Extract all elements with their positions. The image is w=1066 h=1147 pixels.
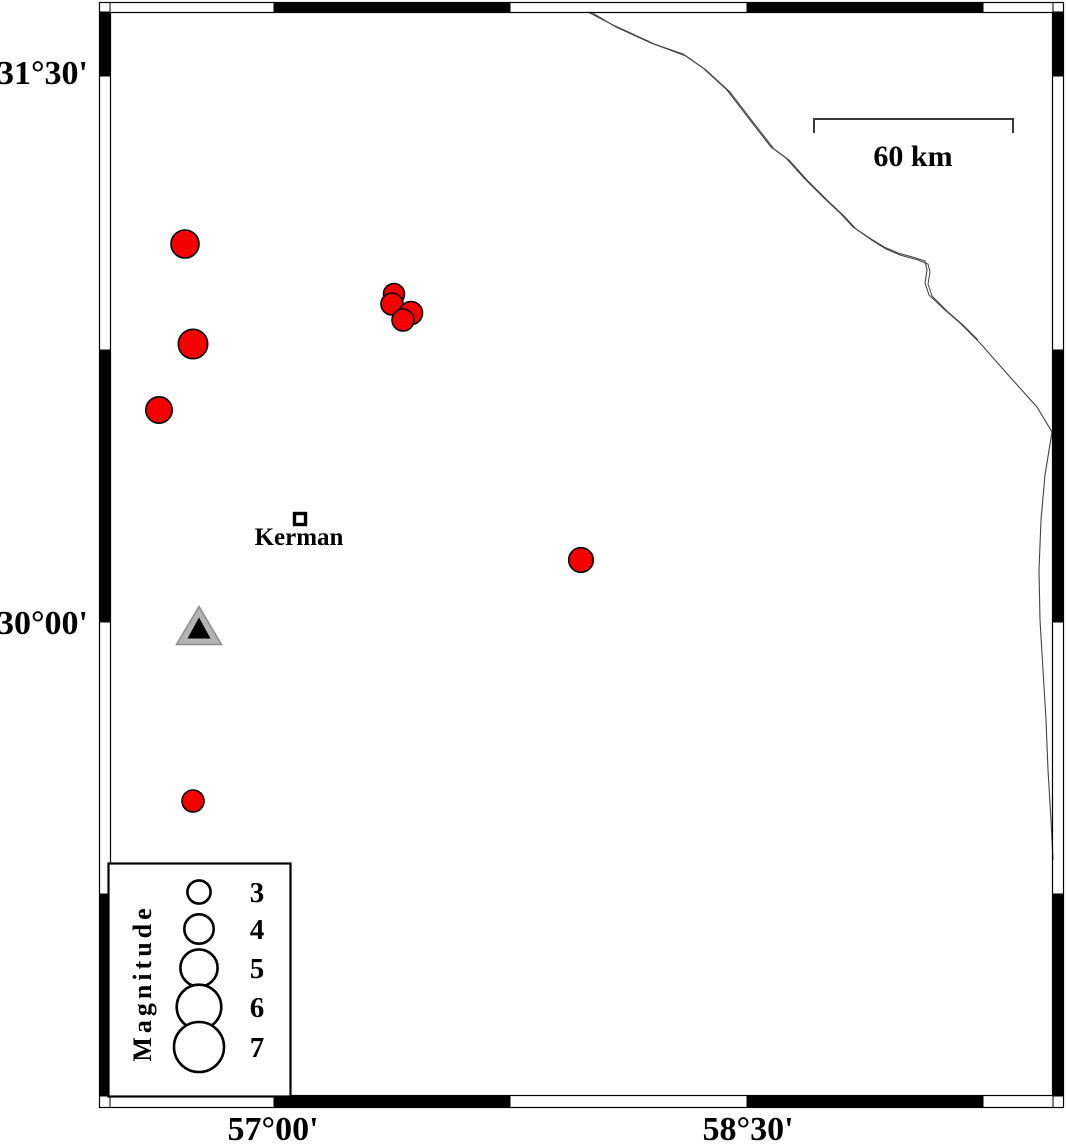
frame-band-bottom	[747, 1096, 983, 1108]
frame-band-right	[1053, 894, 1064, 1096]
city-square-icon	[295, 514, 306, 525]
frame-band-bottom	[274, 1096, 510, 1108]
earthquake-marker	[392, 309, 414, 331]
frame-band-left	[99, 12, 110, 76]
legend-magnitude-circle	[187, 880, 210, 903]
y-axis-tick-label-top: 31°30'	[0, 55, 88, 92]
x-axis-tick-label-left: 57°00'	[227, 1111, 318, 1147]
legend-title: Magnitude	[128, 904, 157, 1061]
legend-magnitude-circle	[184, 914, 213, 943]
earthquake-marker	[182, 790, 204, 812]
scale-bar-label: 60 km	[873, 140, 952, 173]
legend-magnitude-circle	[180, 949, 217, 986]
magnitude-legend: Magnitude 34567	[109, 864, 291, 1097]
seismicity-map-figure: 60 km Kerman Magnitude 34567 31°30' 30°0…	[0, 0, 1066, 1147]
earthquake-marker	[171, 230, 199, 258]
earthquake-marker	[569, 548, 594, 573]
y-axis-tick-label-bottom: 30°00'	[0, 605, 88, 642]
city-label: Kerman	[255, 524, 344, 551]
legend-magnitude-value: 6	[250, 992, 265, 1024]
legend-magnitude-value: 3	[250, 877, 265, 909]
x-axis-tick-label-right: 58°30'	[702, 1111, 793, 1147]
map-canvas: 60 km Kerman Magnitude 34567 31°30' 30°0…	[0, 0, 1066, 1147]
earthquake-marker	[146, 397, 172, 423]
legend-magnitude-value: 5	[250, 953, 265, 985]
frame-band-top	[274, 2, 510, 12]
frame-band-top	[747, 2, 983, 12]
legend-magnitude-value: 4	[250, 914, 265, 946]
earthquake-marker	[178, 329, 207, 358]
frame-band-left	[99, 350, 110, 622]
legend-magnitude-circle	[174, 1022, 224, 1072]
legend-magnitude-value: 7	[250, 1032, 265, 1064]
frame-band-right	[1053, 350, 1064, 622]
frame-band-right	[1053, 12, 1064, 76]
